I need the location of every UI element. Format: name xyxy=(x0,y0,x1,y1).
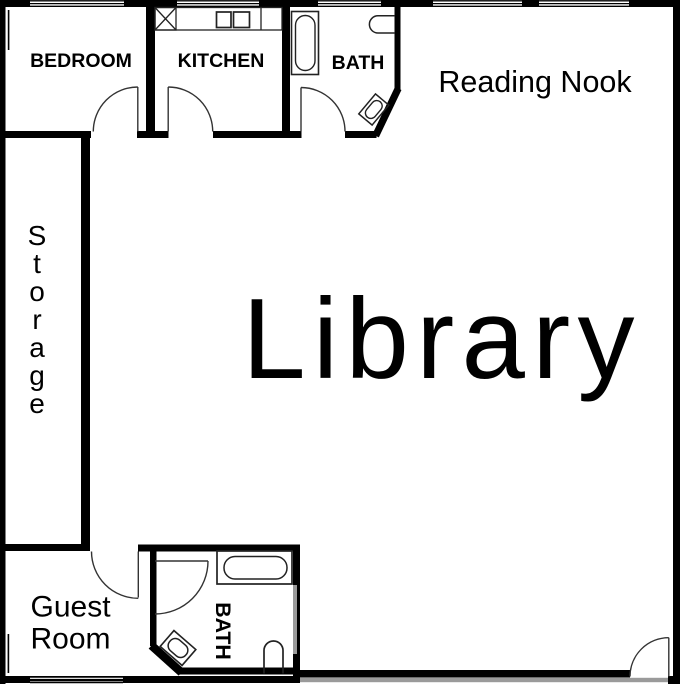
svg-text:Reading Nook: Reading Nook xyxy=(438,65,632,99)
svg-text:KITCHEN: KITCHEN xyxy=(178,50,265,72)
svg-text:BEDROOM: BEDROOM xyxy=(30,50,132,72)
svg-text:o: o xyxy=(29,276,45,307)
svg-text:Guest: Guest xyxy=(31,591,112,624)
svg-text:g: g xyxy=(29,360,45,391)
svg-text:BATH: BATH xyxy=(211,602,235,660)
svg-text:Room: Room xyxy=(31,623,111,656)
svg-text:t: t xyxy=(33,248,41,279)
svg-text:S: S xyxy=(28,220,47,251)
svg-text:Library: Library xyxy=(242,276,642,403)
svg-text:e: e xyxy=(29,388,45,419)
svg-text:r: r xyxy=(32,304,41,335)
svg-text:BATH: BATH xyxy=(332,52,385,74)
svg-text:a: a xyxy=(29,332,45,363)
